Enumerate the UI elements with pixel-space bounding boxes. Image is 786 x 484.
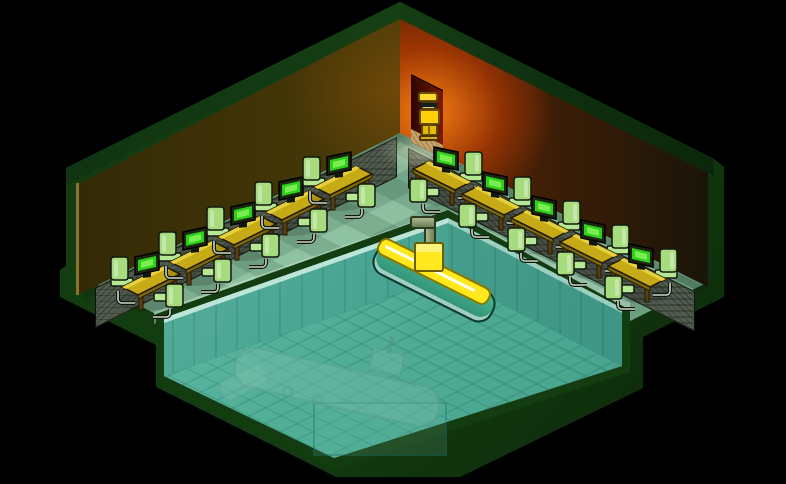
workstation-sprite [602, 243, 680, 311]
workstation-sprite [300, 151, 378, 219]
workstation-layer [0, 0, 786, 484]
game-stage [0, 0, 786, 484]
workstation[interactable] [602, 243, 680, 311]
workstation[interactable] [300, 151, 378, 219]
